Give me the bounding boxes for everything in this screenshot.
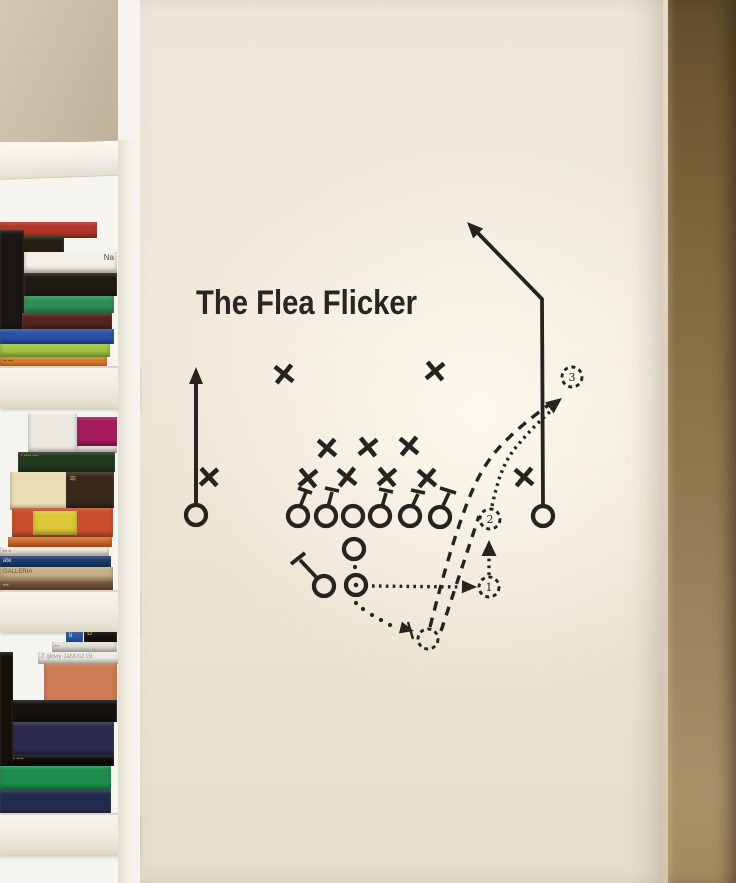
ghost-label-3: 3 xyxy=(569,371,576,384)
adjacent-wall xyxy=(668,0,736,883)
right-wr-route xyxy=(472,227,543,504)
rb-ball-dot xyxy=(354,583,359,588)
qb-drop-dot xyxy=(361,607,365,611)
lineman-circle xyxy=(288,506,308,526)
play-diagram: 123 xyxy=(0,0,736,883)
block-bar xyxy=(298,488,312,493)
ghost-label-1: 1 xyxy=(486,581,493,594)
left-wr-circle xyxy=(186,505,206,525)
block-bar xyxy=(379,489,393,492)
handoff-dotted xyxy=(372,586,460,587)
right-wr-circle xyxy=(533,506,553,526)
block-bar xyxy=(411,490,425,493)
block-bar xyxy=(325,488,339,491)
play-title: The Flea Flicker xyxy=(196,284,417,323)
handoff-arrow xyxy=(462,580,477,593)
lineman-circle xyxy=(316,506,336,526)
lineman-circle xyxy=(343,506,363,526)
room-photo: Na▪▪ ▪▪▪▪ ▪▪▪▪ ▪▪▪≋▪▪▪ ▪▪ateGALLERIA▪▪▪▪… xyxy=(0,0,736,883)
ghost-label-2: 2 xyxy=(487,513,494,526)
pitch-dashed xyxy=(441,516,479,631)
block-bar xyxy=(440,488,456,493)
qb-drop-dot xyxy=(353,565,357,569)
qb-drop-dot xyxy=(370,613,374,617)
qb-drop-dot xyxy=(354,601,358,605)
lineman-circle xyxy=(400,506,420,526)
blocker-stick xyxy=(300,560,317,578)
left-wr-arrow xyxy=(189,367,203,384)
ghost-position xyxy=(418,629,438,649)
blocker-circle xyxy=(314,576,334,596)
qb-drop-dot xyxy=(388,623,392,627)
lineman-circle xyxy=(370,506,390,526)
lineman-circle xyxy=(430,507,450,527)
qb-circle xyxy=(344,539,364,559)
upfield-arrow xyxy=(482,540,497,556)
qb-drop-dot xyxy=(379,618,383,622)
